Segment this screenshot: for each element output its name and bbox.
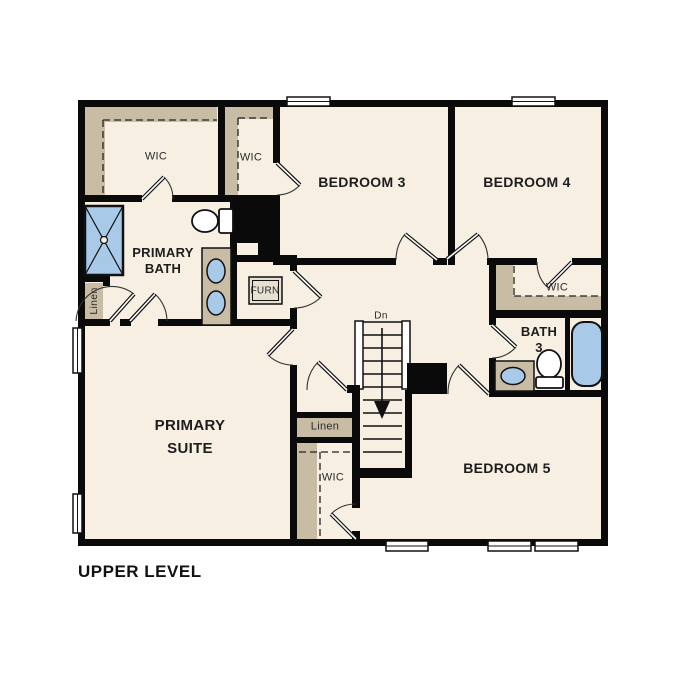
window xyxy=(512,97,555,106)
label-stairs-down: Dn xyxy=(374,310,387,322)
window xyxy=(73,494,82,533)
room-label-wic-bedroom-4: WIC xyxy=(546,282,568,295)
toilet-primary xyxy=(192,209,233,233)
sink xyxy=(207,259,225,283)
room-label-line: 3 xyxy=(521,340,557,356)
room-label-line: PRIMARY xyxy=(155,414,226,437)
vanity-bath-3 xyxy=(495,361,534,391)
floor-plan: WIC WIC BEDROOM 3 BEDROOM 4 PRIMARY BATH… xyxy=(0,0,687,687)
room-label-line: PRIMARY xyxy=(132,245,194,261)
window xyxy=(488,541,531,551)
shower xyxy=(85,206,123,275)
room-label-bedroom-4: BEDROOM 4 xyxy=(483,174,571,190)
vanity-primary xyxy=(202,248,231,325)
room-label-line: SUITE xyxy=(155,437,226,460)
sink xyxy=(207,291,225,315)
room-label-bedroom-5: BEDROOM 5 xyxy=(463,460,551,476)
stair-rail xyxy=(355,321,363,389)
room-label-bedroom-3: BEDROOM 3 xyxy=(318,174,406,190)
tub-niche-wall xyxy=(565,318,570,390)
label-linen-hall: Linen xyxy=(311,421,339,434)
room-label-bath-3: BATH 3 xyxy=(521,324,557,357)
bathtub xyxy=(572,322,602,386)
window xyxy=(73,328,82,373)
room-label-line: BATH xyxy=(521,324,557,340)
room-label-wic-primary: WIC xyxy=(145,151,167,164)
label-linen-primary-bath: Linen xyxy=(88,287,100,314)
floor-plan-drawing xyxy=(0,0,687,687)
wall-chase xyxy=(407,363,447,394)
window xyxy=(535,541,578,551)
room-label-wic-bedroom-5: WIC xyxy=(322,472,344,485)
plan-title: UPPER LEVEL xyxy=(78,562,202,582)
room-label-line: BATH xyxy=(132,261,194,277)
room-label-wic-bedroom-3: WIC xyxy=(240,152,262,165)
room-label-primary-bath: PRIMARY BATH xyxy=(132,245,194,278)
wall-chase xyxy=(230,202,277,243)
room-label-primary-suite: PRIMARY SUITE xyxy=(155,414,226,461)
wall-chase xyxy=(258,240,277,257)
window xyxy=(386,541,428,551)
window xyxy=(287,97,330,106)
exterior-wall xyxy=(601,100,608,546)
sink xyxy=(501,368,525,385)
label-furnace: FURN xyxy=(251,285,280,297)
